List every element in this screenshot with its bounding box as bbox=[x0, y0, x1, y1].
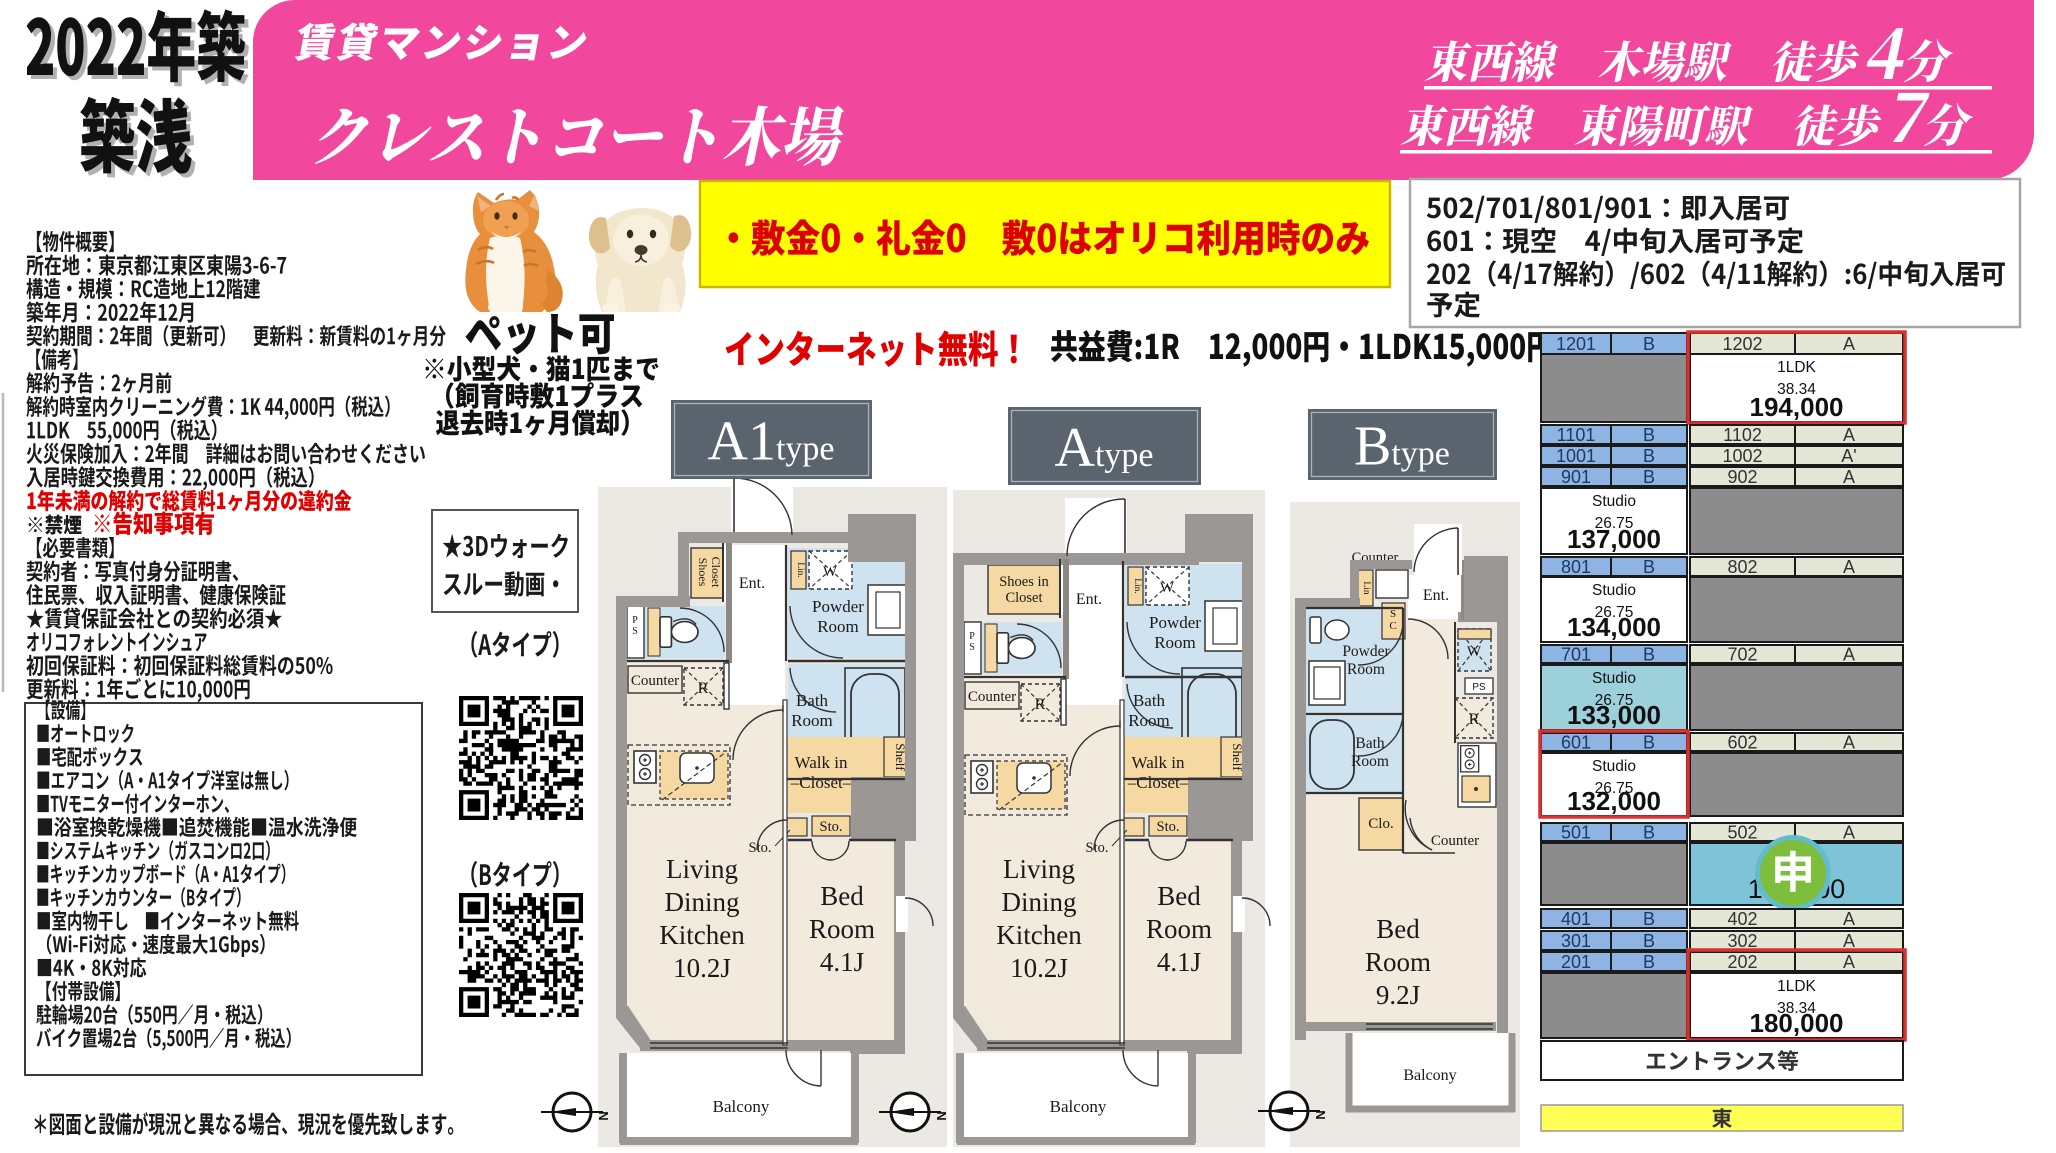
svg-text:P: P bbox=[632, 615, 638, 626]
svg-text:901: 901 bbox=[1561, 467, 1591, 487]
svg-text:A: A bbox=[1843, 822, 1855, 842]
svg-text:A': A' bbox=[1841, 446, 1856, 466]
svg-text:Bed: Bed bbox=[1376, 914, 1420, 944]
svg-text:602: 602 bbox=[1727, 732, 1757, 752]
svg-text:1202: 1202 bbox=[1722, 334, 1762, 354]
svg-text:202: 202 bbox=[1727, 952, 1757, 972]
svg-text:Kitchen: Kitchen bbox=[659, 920, 745, 950]
svg-text:137,000: 137,000 bbox=[1567, 524, 1661, 554]
svg-text:802: 802 bbox=[1727, 557, 1757, 577]
svg-text:Bath: Bath bbox=[1133, 691, 1166, 710]
svg-text:Powder: Powder bbox=[1149, 613, 1201, 632]
svg-text:Bed: Bed bbox=[1157, 881, 1201, 911]
svg-text:Sto.: Sto. bbox=[1157, 819, 1180, 835]
svg-text:Shoes in: Shoes in bbox=[999, 574, 1049, 590]
svg-text:B: B bbox=[1643, 644, 1655, 664]
svg-text:S: S bbox=[969, 642, 975, 653]
svg-text:Room: Room bbox=[1347, 661, 1385, 678]
svg-text:Shoes: Shoes bbox=[696, 558, 710, 587]
svg-text:Lin.: Lin. bbox=[1132, 578, 1142, 594]
svg-text:Living: Living bbox=[666, 854, 738, 884]
svg-text:B: B bbox=[1643, 446, 1655, 466]
svg-text:180,000: 180,000 bbox=[1750, 1008, 1844, 1038]
svg-text:Ent.: Ent. bbox=[1423, 587, 1449, 604]
svg-text:1LDK: 1LDK bbox=[1777, 978, 1816, 995]
svg-text:601: 601 bbox=[1561, 732, 1591, 752]
svg-text:801: 801 bbox=[1561, 557, 1591, 577]
svg-text:Sto.: Sto. bbox=[820, 819, 843, 835]
svg-text:PS: PS bbox=[1472, 682, 1486, 693]
svg-text:133,000: 133,000 bbox=[1567, 700, 1661, 730]
svg-text:Balcony: Balcony bbox=[713, 1097, 770, 1116]
svg-text:134,000: 134,000 bbox=[1567, 612, 1661, 642]
svg-text:4.1J: 4.1J bbox=[820, 947, 864, 977]
svg-text:10.2J: 10.2J bbox=[1010, 953, 1068, 983]
svg-text:W: W bbox=[1160, 580, 1175, 596]
svg-text:194,000: 194,000 bbox=[1750, 392, 1844, 422]
svg-text:Bed: Bed bbox=[820, 881, 864, 911]
svg-text:R: R bbox=[698, 680, 709, 697]
svg-text:A: A bbox=[1843, 557, 1855, 577]
svg-text:A: A bbox=[1843, 467, 1855, 487]
svg-text:B: B bbox=[1643, 822, 1655, 842]
svg-text:Ent.: Ent. bbox=[739, 575, 765, 592]
svg-text:Balcony: Balcony bbox=[1403, 1067, 1456, 1084]
svg-text:Clo.: Clo. bbox=[1368, 816, 1393, 832]
svg-text:902: 902 bbox=[1727, 467, 1757, 487]
svg-text:1201: 1201 bbox=[1556, 334, 1596, 354]
svg-text:N: N bbox=[1313, 1110, 1328, 1119]
svg-text:402: 402 bbox=[1727, 909, 1757, 929]
svg-text:201: 201 bbox=[1561, 952, 1591, 972]
svg-text:502: 502 bbox=[1727, 822, 1757, 842]
svg-text:Lin: Lin bbox=[1361, 581, 1371, 594]
svg-text:S: S bbox=[1390, 608, 1396, 620]
svg-text:B: B bbox=[1643, 732, 1655, 752]
svg-text:Studio: Studio bbox=[1592, 582, 1636, 599]
svg-text:C: C bbox=[1389, 620, 1396, 632]
svg-text:1102: 1102 bbox=[1723, 425, 1762, 445]
svg-text:–Closet–: –Closet– bbox=[790, 773, 852, 792]
svg-text:501: 501 bbox=[1561, 822, 1591, 842]
svg-text:–Closet–: –Closet– bbox=[1127, 773, 1189, 792]
svg-text:Room: Room bbox=[1154, 633, 1196, 652]
svg-text:10.2J: 10.2J bbox=[673, 953, 731, 983]
svg-text:1002: 1002 bbox=[1722, 446, 1762, 466]
svg-text:Closet: Closet bbox=[709, 557, 723, 588]
svg-text:132,000: 132,000 bbox=[1567, 786, 1661, 816]
svg-text:Counter: Counter bbox=[631, 673, 679, 689]
svg-text:702: 702 bbox=[1727, 644, 1757, 664]
svg-text:Room: Room bbox=[791, 711, 833, 730]
svg-text:A: A bbox=[1843, 334, 1855, 354]
svg-text:A: A bbox=[1843, 952, 1855, 972]
svg-text:Dining: Dining bbox=[1001, 887, 1076, 917]
svg-text:Walk in: Walk in bbox=[1132, 753, 1185, 772]
svg-text:R: R bbox=[1469, 711, 1480, 728]
svg-text:Closet: Closet bbox=[1005, 590, 1042, 606]
svg-text:1101: 1101 bbox=[1557, 425, 1596, 445]
svg-text:1001: 1001 bbox=[1556, 446, 1596, 466]
svg-text:A: A bbox=[1843, 732, 1855, 752]
svg-text:Counter: Counter bbox=[968, 689, 1016, 705]
svg-text:Balcony: Balcony bbox=[1050, 1097, 1107, 1116]
svg-text:Powder: Powder bbox=[812, 597, 864, 616]
svg-text:Walk in: Walk in bbox=[795, 753, 848, 772]
svg-text:401: 401 bbox=[1561, 909, 1591, 929]
svg-text:S: S bbox=[632, 626, 638, 637]
svg-text:Room: Room bbox=[1351, 753, 1389, 770]
svg-text:701: 701 bbox=[1561, 644, 1591, 664]
svg-text:1LDK: 1LDK bbox=[1777, 359, 1816, 376]
svg-text:301: 301 bbox=[1561, 931, 1591, 951]
svg-text:Lin.: Lin. bbox=[795, 562, 805, 578]
svg-text:Sto.: Sto. bbox=[1086, 840, 1109, 856]
svg-text:B: B bbox=[1643, 909, 1655, 929]
svg-text:Dining: Dining bbox=[664, 887, 739, 917]
svg-text:A: A bbox=[1843, 425, 1855, 445]
svg-text:W: W bbox=[1467, 644, 1482, 660]
svg-text:B: B bbox=[1643, 557, 1655, 577]
svg-text:Kitchen: Kitchen bbox=[996, 920, 1082, 950]
svg-text:A: A bbox=[1843, 644, 1855, 664]
svg-text:W: W bbox=[823, 564, 838, 580]
svg-text:Studio: Studio bbox=[1592, 493, 1636, 510]
svg-text:N: N bbox=[596, 1111, 611, 1120]
svg-text:Studio: Studio bbox=[1592, 758, 1636, 775]
svg-text:R: R bbox=[1035, 696, 1046, 713]
svg-text:Living: Living bbox=[1003, 854, 1075, 884]
svg-text:B: B bbox=[1643, 334, 1655, 354]
svg-text:Ent.: Ent. bbox=[1076, 591, 1102, 608]
svg-text:B: B bbox=[1643, 425, 1655, 445]
svg-text:Room: Room bbox=[809, 914, 875, 944]
svg-text:P: P bbox=[969, 631, 975, 642]
svg-text:Room: Room bbox=[817, 617, 859, 636]
svg-text:B: B bbox=[1643, 952, 1655, 972]
svg-text:Room: Room bbox=[1365, 947, 1431, 977]
svg-text:Studio: Studio bbox=[1592, 670, 1636, 687]
svg-text:302: 302 bbox=[1727, 931, 1757, 951]
svg-text:Room: Room bbox=[1146, 914, 1212, 944]
svg-text:Counter: Counter bbox=[1431, 833, 1479, 849]
svg-text:A: A bbox=[1843, 931, 1855, 951]
svg-text:4.1J: 4.1J bbox=[1157, 947, 1201, 977]
svg-text:A: A bbox=[1843, 909, 1855, 929]
svg-text:Sto.: Sto. bbox=[749, 840, 772, 856]
svg-text:Bath: Bath bbox=[796, 691, 829, 710]
svg-text:9.2J: 9.2J bbox=[1376, 980, 1420, 1010]
svg-text:B: B bbox=[1643, 467, 1655, 487]
svg-text:N: N bbox=[934, 1111, 949, 1120]
svg-text:B: B bbox=[1643, 931, 1655, 951]
